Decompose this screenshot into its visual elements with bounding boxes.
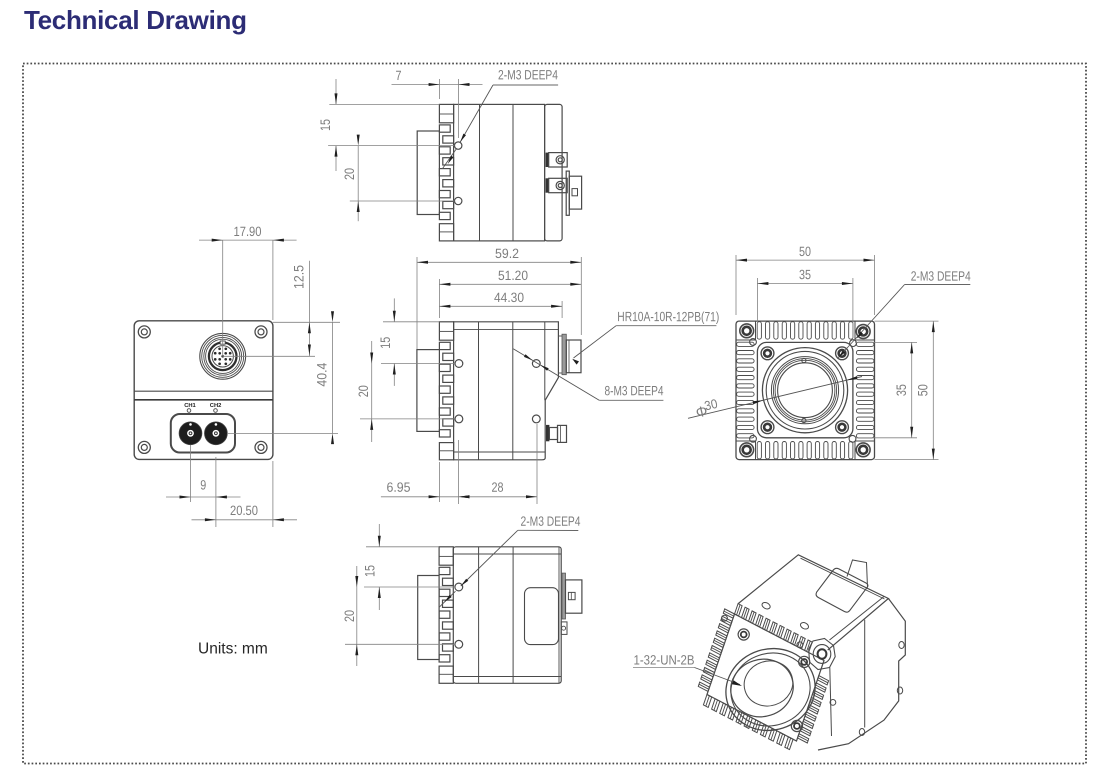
svg-text:20: 20 [342,610,357,622]
svg-text:2-M3 DEEP4: 2-M3 DEEP4 [498,67,558,82]
svg-text:40.4: 40.4 [315,362,330,386]
svg-text:30: 30 [703,396,719,414]
svg-text:2-M3 DEEP4: 2-M3 DEEP4 [520,514,580,529]
svg-text:1-32-UN-2B: 1-32-UN-2B [633,652,694,667]
svg-text:15: 15 [363,565,378,577]
svg-text:Units: mm: Units: mm [198,641,268,658]
svg-text:2-M3 DEEP4: 2-M3 DEEP4 [911,269,971,284]
svg-text:HR10A-10R-12PB(71): HR10A-10R-12PB(71) [617,309,719,324]
svg-text:12.5: 12.5 [292,265,307,289]
svg-text:7: 7 [395,68,401,83]
svg-text:50: 50 [799,244,811,259]
svg-text:35: 35 [894,384,909,396]
svg-text:51.20: 51.20 [498,268,528,283]
svg-text:20.50: 20.50 [230,503,258,518]
svg-text:CH1: CH1 [184,403,196,409]
svg-text:20: 20 [356,385,371,397]
svg-text:28: 28 [491,480,503,495]
svg-text:44.30: 44.30 [494,290,524,305]
svg-text:50: 50 [916,384,931,396]
svg-text:9: 9 [200,477,206,492]
svg-text:15: 15 [318,119,333,131]
svg-text:8-M3 DEEP4: 8-M3 DEEP4 [604,383,663,398]
svg-text:59.2: 59.2 [495,246,519,261]
svg-text:35: 35 [799,267,811,282]
svg-text:20: 20 [342,168,357,180]
svg-text:6.95: 6.95 [386,480,410,495]
svg-text:15: 15 [378,337,393,349]
svg-text:17.90: 17.90 [233,224,261,239]
